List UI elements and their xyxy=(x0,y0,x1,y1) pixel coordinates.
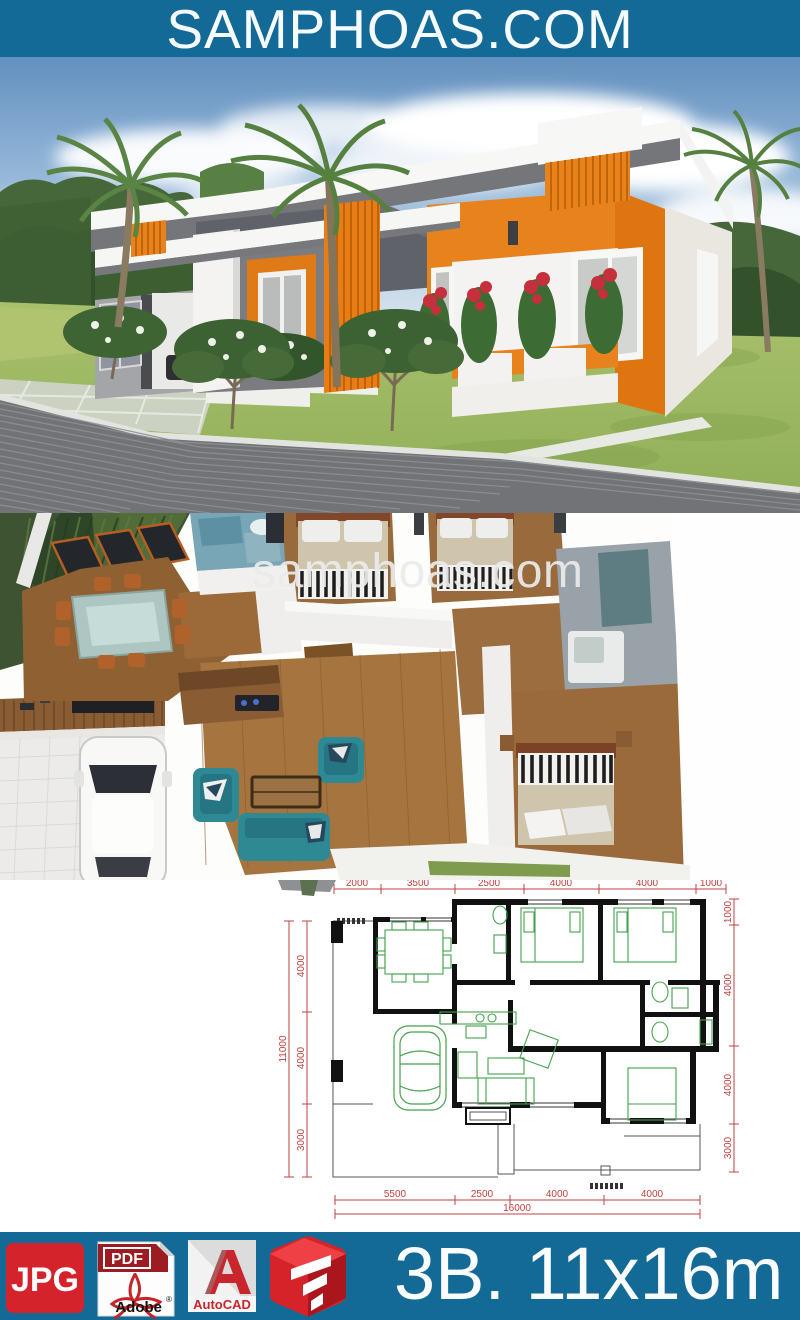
svg-text:4000: 4000 xyxy=(296,954,307,977)
svg-text:11000: 11000 xyxy=(278,1035,289,1063)
svg-text:3500: 3500 xyxy=(407,880,430,889)
svg-text:JPG: JPG xyxy=(11,1261,79,1299)
svg-text:4000: 4000 xyxy=(550,880,573,889)
svg-text:4000: 4000 xyxy=(636,880,659,889)
svg-text:4000: 4000 xyxy=(641,1189,664,1200)
svg-text:4000: 4000 xyxy=(546,1189,569,1200)
svg-text:4000: 4000 xyxy=(296,1046,307,1069)
svg-text:3B. 11x16m: 3B. 11x16m xyxy=(394,1232,783,1315)
svg-text:2500: 2500 xyxy=(478,880,501,889)
svg-text:1000: 1000 xyxy=(723,900,734,923)
svg-text:2500: 2500 xyxy=(471,1189,494,1200)
svg-text:4000: 4000 xyxy=(723,1073,734,1096)
svg-text:®: ® xyxy=(166,1295,172,1304)
svg-text:3000: 3000 xyxy=(723,1136,734,1159)
svg-text:3000: 3000 xyxy=(296,1128,307,1151)
svg-text:1000: 1000 xyxy=(700,880,723,889)
svg-text:5500: 5500 xyxy=(384,1189,407,1200)
svg-text:samphoas.com: samphoas.com xyxy=(252,545,583,598)
svg-text:AutoCAD: AutoCAD xyxy=(193,1297,251,1312)
svg-text:Adobe: Adobe xyxy=(115,1299,162,1316)
svg-text:PDF: PDF xyxy=(111,1251,143,1268)
svg-text:16000: 16000 xyxy=(503,1203,531,1214)
svg-text:2000: 2000 xyxy=(346,880,369,889)
svg-text:4000: 4000 xyxy=(723,973,734,996)
